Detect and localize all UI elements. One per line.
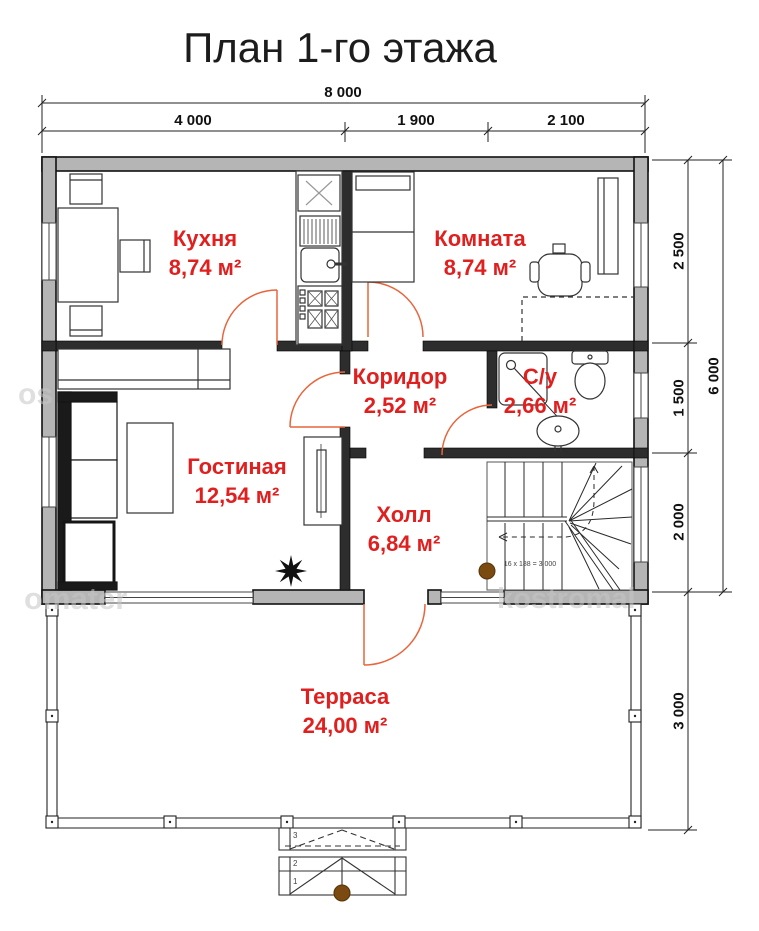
coffee-table: [127, 423, 173, 513]
kitchen-table: [58, 208, 118, 302]
stove: [298, 286, 342, 344]
bedroom-window: [634, 223, 648, 287]
plant: [275, 555, 307, 587]
dim-right-1500: 1 500: [671, 379, 688, 417]
step-number-3: 3: [293, 831, 297, 840]
floor-plan-page: План 1-го этажа 8 000 4 000 1 900 2 100 …: [0, 0, 759, 931]
living-label: Гостиная 12,54 м²: [187, 452, 286, 511]
desk: [598, 178, 618, 274]
stair-formula: 16 х 188 = 3 000: [504, 561, 556, 568]
dim-right-total: 6 000: [706, 357, 723, 395]
bathroom-name: С/у: [504, 362, 577, 391]
corridor-label: Коридор 2,52 м²: [353, 362, 448, 421]
living-window: [42, 437, 56, 507]
bathroom-label: С/у 2,66 м²: [504, 362, 577, 421]
bed: [352, 172, 414, 282]
stair-window: [634, 467, 648, 562]
hall-label: Холл 6,84 м²: [368, 500, 441, 559]
kitchen-chair: [70, 306, 102, 336]
terrace-door-arc: [364, 604, 425, 665]
kitchen-name: Кухня: [169, 224, 242, 253]
bedroom-name: Комната: [434, 224, 525, 253]
closet-dashed-outline: [522, 297, 634, 341]
kitchen-area: 8,74 м²: [169, 253, 242, 282]
hall-area: 6,84 м²: [368, 529, 441, 558]
bedroom-label: Комната 8,74 м²: [434, 224, 525, 283]
step-number-1: 1: [293, 877, 297, 886]
bathroom-window: [634, 373, 648, 418]
page-title: План 1-го этажа: [183, 24, 497, 72]
dim-terrace-3000: 3 000: [671, 692, 688, 730]
terrace-area: 24,00 м²: [301, 711, 389, 740]
dim-right-2000: 2 000: [671, 503, 688, 541]
terrace-name: Терраса: [301, 682, 389, 711]
corner-sofa: [58, 392, 117, 590]
hall-name: Холл: [368, 500, 441, 529]
living-name: Гостиная: [187, 452, 286, 481]
kitchen-label: Кухня 8,74 м²: [169, 224, 242, 283]
tv-stand: [304, 437, 342, 525]
kitchen-door-arc: [222, 290, 277, 345]
terrace-window-right: [441, 592, 504, 603]
washbasin: [537, 416, 579, 452]
wardrobe: [58, 349, 230, 389]
hall-column: [479, 563, 495, 579]
floor-plan-drawing: [0, 0, 759, 931]
watermark-bottom-left: omater: [24, 581, 127, 617]
corridor-name: Коридор: [353, 362, 448, 391]
living-area: 12,54 м²: [187, 481, 286, 510]
bedroom-area: 8,74 м²: [434, 253, 525, 282]
dim-segment-1900: 1 900: [397, 112, 435, 129]
entrance-column: [334, 885, 350, 901]
corridor-area: 2,52 м²: [353, 391, 448, 420]
kitchen-chair: [70, 174, 102, 204]
entrance-steps: [279, 828, 406, 901]
dim-segment-2100: 2 100: [547, 112, 585, 129]
vent-x-icon: [298, 175, 340, 211]
step-number-2: 2: [293, 859, 297, 868]
terrace-label: Терраса 24,00 м²: [301, 682, 389, 741]
kitchen-chair: [120, 240, 150, 272]
dim-right-2500: 2 500: [671, 232, 688, 270]
sink-drainer: [300, 216, 340, 246]
watermark-left: os: [18, 378, 53, 412]
office-chair: [530, 244, 590, 296]
toilet: [572, 351, 608, 399]
bathroom-area: 2,66 м²: [504, 391, 577, 420]
kitchen-window: [42, 223, 56, 280]
bedroom-door-arc: [368, 282, 423, 337]
dim-top-total: 8 000: [324, 84, 362, 101]
living-door-arc: [290, 372, 345, 427]
dim-segment-4000: 4 000: [174, 112, 212, 129]
staircase: [479, 462, 632, 590]
bathroom-door-arc: [442, 405, 492, 455]
watermark-bottom-right: kostromal: [497, 583, 636, 616]
terrace-structure: [46, 604, 641, 901]
